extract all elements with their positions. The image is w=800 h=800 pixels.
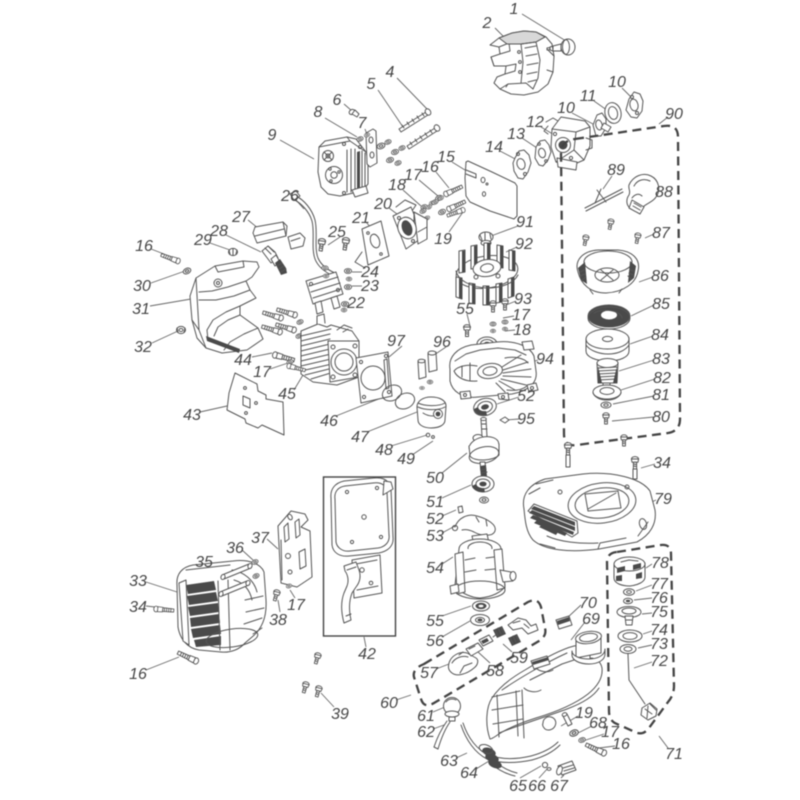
svg-text:21: 21 bbox=[351, 210, 370, 227]
svg-text:37: 37 bbox=[251, 530, 270, 547]
svg-text:26: 26 bbox=[280, 188, 299, 205]
svg-text:22: 22 bbox=[346, 295, 365, 312]
svg-text:95: 95 bbox=[517, 411, 535, 428]
svg-text:6: 6 bbox=[333, 92, 342, 109]
svg-text:31: 31 bbox=[132, 301, 150, 318]
svg-text:84: 84 bbox=[651, 327, 669, 344]
svg-text:38: 38 bbox=[269, 612, 287, 629]
svg-text:15: 15 bbox=[437, 149, 455, 166]
svg-text:23: 23 bbox=[360, 278, 379, 295]
svg-text:53: 53 bbox=[426, 528, 444, 545]
svg-text:12: 12 bbox=[526, 114, 544, 131]
svg-text:8: 8 bbox=[314, 104, 323, 121]
svg-text:87: 87 bbox=[652, 225, 671, 242]
svg-text:61: 61 bbox=[417, 708, 435, 725]
svg-text:39: 39 bbox=[331, 706, 349, 723]
svg-text:97: 97 bbox=[387, 333, 406, 350]
svg-text:2: 2 bbox=[482, 15, 492, 32]
svg-text:42: 42 bbox=[358, 646, 376, 663]
svg-text:54: 54 bbox=[426, 560, 444, 577]
svg-text:9: 9 bbox=[268, 127, 277, 144]
svg-text:86: 86 bbox=[651, 268, 669, 285]
svg-text:55: 55 bbox=[426, 613, 444, 630]
svg-text:91: 91 bbox=[516, 214, 534, 231]
svg-text:11: 11 bbox=[580, 88, 597, 105]
svg-text:10: 10 bbox=[557, 100, 575, 117]
svg-text:16: 16 bbox=[135, 238, 153, 255]
svg-text:56: 56 bbox=[426, 633, 444, 650]
svg-text:60: 60 bbox=[380, 695, 398, 712]
svg-text:32: 32 bbox=[134, 339, 152, 356]
svg-text:55: 55 bbox=[456, 301, 474, 318]
svg-text:17: 17 bbox=[404, 167, 423, 184]
svg-text:27: 27 bbox=[231, 209, 251, 226]
svg-text:47: 47 bbox=[351, 429, 370, 446]
svg-text:52: 52 bbox=[426, 511, 444, 528]
svg-text:44: 44 bbox=[234, 352, 252, 369]
svg-text:49: 49 bbox=[397, 451, 415, 468]
svg-text:18: 18 bbox=[388, 177, 406, 194]
svg-text:16: 16 bbox=[612, 736, 630, 753]
svg-text:20: 20 bbox=[373, 196, 392, 213]
svg-text:93: 93 bbox=[514, 291, 532, 308]
svg-text:50: 50 bbox=[426, 470, 444, 487]
svg-text:25: 25 bbox=[327, 224, 346, 241]
svg-text:85: 85 bbox=[652, 296, 670, 313]
svg-text:74: 74 bbox=[650, 622, 668, 639]
svg-text:59: 59 bbox=[510, 650, 528, 667]
svg-text:28: 28 bbox=[209, 223, 228, 240]
svg-text:65: 65 bbox=[509, 778, 527, 795]
svg-text:18: 18 bbox=[513, 322, 531, 339]
svg-text:96: 96 bbox=[433, 334, 451, 351]
svg-text:57: 57 bbox=[420, 665, 439, 682]
svg-text:7: 7 bbox=[358, 115, 368, 132]
svg-text:69: 69 bbox=[582, 611, 600, 628]
svg-text:48: 48 bbox=[375, 442, 393, 459]
svg-text:67: 67 bbox=[550, 778, 569, 795]
svg-text:35: 35 bbox=[195, 554, 213, 571]
svg-text:92: 92 bbox=[515, 236, 533, 253]
svg-text:4: 4 bbox=[386, 64, 395, 81]
svg-text:79: 79 bbox=[654, 491, 672, 508]
svg-text:89: 89 bbox=[607, 162, 625, 179]
svg-text:72: 72 bbox=[650, 653, 668, 670]
svg-text:29: 29 bbox=[193, 232, 212, 249]
svg-text:94: 94 bbox=[536, 351, 554, 368]
svg-text:16: 16 bbox=[129, 666, 147, 683]
svg-text:66: 66 bbox=[528, 778, 546, 795]
svg-text:52: 52 bbox=[517, 388, 535, 405]
svg-text:51: 51 bbox=[426, 494, 444, 511]
svg-text:19: 19 bbox=[434, 231, 452, 248]
svg-text:77: 77 bbox=[650, 576, 669, 593]
svg-text:64: 64 bbox=[460, 765, 478, 782]
svg-text:43: 43 bbox=[183, 407, 201, 424]
svg-text:17: 17 bbox=[287, 597, 306, 614]
svg-text:58: 58 bbox=[486, 663, 504, 680]
svg-text:45: 45 bbox=[278, 386, 296, 403]
svg-text:16: 16 bbox=[421, 159, 439, 176]
svg-text:14: 14 bbox=[485, 139, 503, 156]
svg-text:83: 83 bbox=[652, 351, 670, 368]
svg-text:34: 34 bbox=[653, 455, 671, 472]
svg-text:88: 88 bbox=[655, 184, 673, 201]
svg-text:71: 71 bbox=[665, 746, 683, 763]
svg-text:90: 90 bbox=[665, 106, 683, 123]
svg-text:81: 81 bbox=[652, 387, 670, 404]
svg-text:80: 80 bbox=[652, 409, 670, 426]
svg-text:30: 30 bbox=[133, 278, 151, 295]
svg-text:62: 62 bbox=[417, 724, 435, 741]
svg-text:17: 17 bbox=[253, 364, 272, 381]
svg-text:82: 82 bbox=[653, 370, 671, 387]
svg-text:10: 10 bbox=[608, 74, 626, 91]
svg-text:13: 13 bbox=[507, 126, 525, 143]
svg-text:46: 46 bbox=[320, 413, 338, 430]
svg-text:78: 78 bbox=[651, 555, 669, 572]
svg-text:36: 36 bbox=[226, 540, 244, 557]
svg-text:1: 1 bbox=[510, 1, 519, 18]
svg-text:63: 63 bbox=[440, 753, 458, 770]
svg-text:70: 70 bbox=[579, 595, 597, 612]
svg-text:5: 5 bbox=[367, 76, 376, 93]
svg-text:33: 33 bbox=[129, 573, 147, 590]
svg-text:34: 34 bbox=[129, 599, 147, 616]
